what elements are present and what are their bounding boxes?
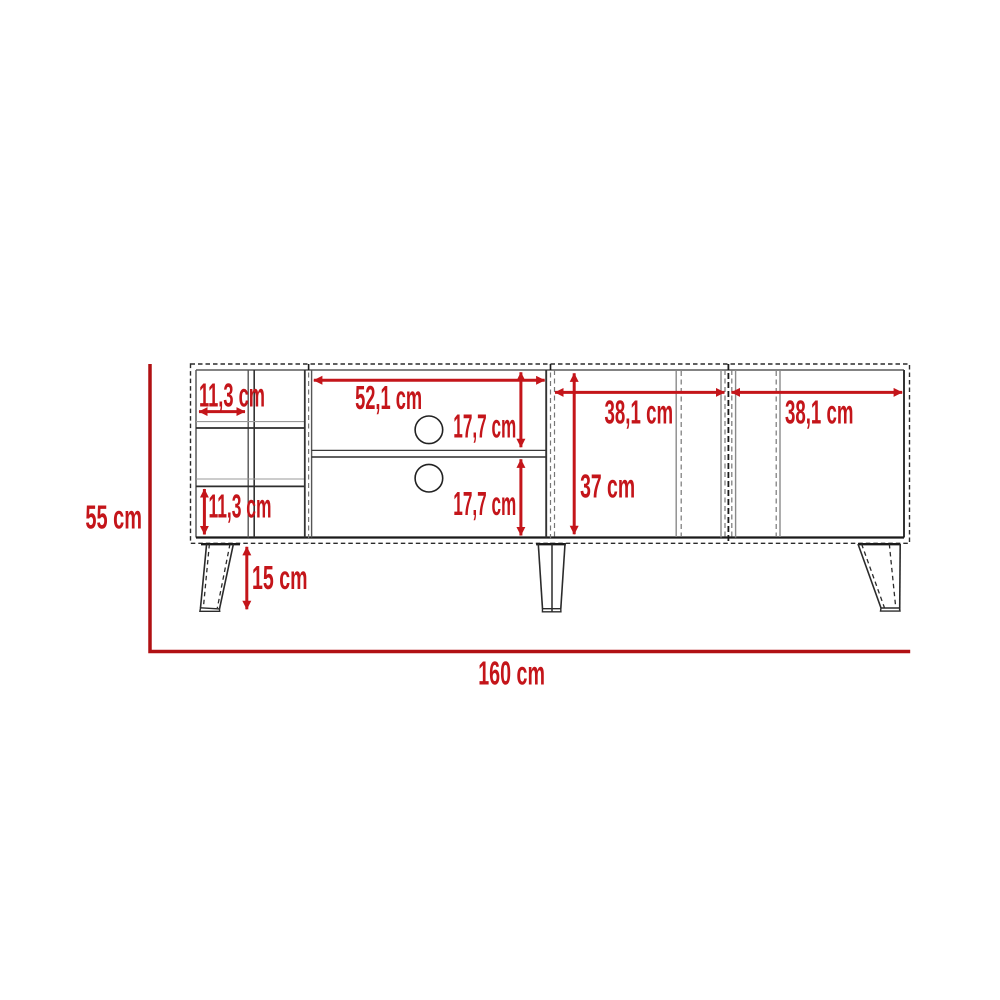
svg-text:37 cm: 37 cm bbox=[580, 469, 635, 506]
svg-text:52,1 cm: 52,1 cm bbox=[355, 380, 422, 417]
svg-text:11,3 cm: 11,3 cm bbox=[209, 489, 272, 526]
svg-text:11,3 cm: 11,3 cm bbox=[199, 378, 265, 415]
svg-text:55 cm: 55 cm bbox=[85, 499, 142, 536]
svg-text:160 cm: 160 cm bbox=[478, 656, 545, 693]
svg-text:17,7 cm: 17,7 cm bbox=[453, 408, 516, 445]
svg-text:38,1 cm: 38,1 cm bbox=[785, 394, 854, 431]
svg-text:15 cm: 15 cm bbox=[252, 560, 308, 597]
svg-text:17,7 cm: 17,7 cm bbox=[453, 486, 516, 523]
svg-text:38,1 cm: 38,1 cm bbox=[605, 394, 674, 431]
